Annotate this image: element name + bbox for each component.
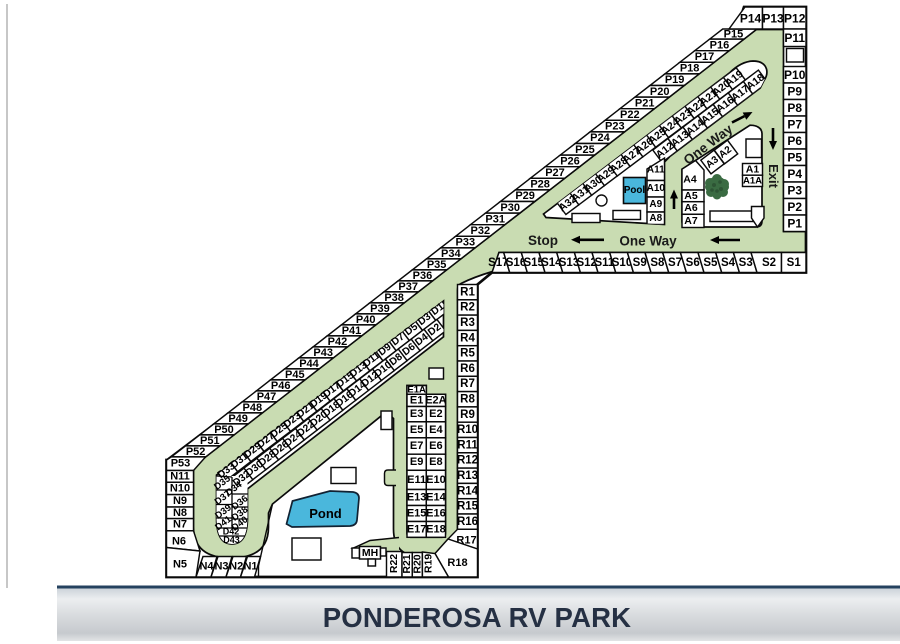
svg-text:Pool: Pool xyxy=(624,185,646,196)
svg-text:P30: P30 xyxy=(500,202,520,214)
svg-text:R9: R9 xyxy=(460,409,475,421)
svg-text:N11: N11 xyxy=(170,470,190,482)
svg-text:P28: P28 xyxy=(530,179,550,191)
svg-text:P22: P22 xyxy=(620,109,640,121)
svg-text:P16: P16 xyxy=(710,39,730,51)
svg-text:P21: P21 xyxy=(635,97,655,109)
svg-text:P3: P3 xyxy=(787,184,802,198)
svg-text:E2A: E2A xyxy=(425,394,446,406)
svg-text:N10: N10 xyxy=(170,483,190,495)
svg-text:One Way: One Way xyxy=(619,234,677,249)
svg-text:S7: S7 xyxy=(668,257,682,269)
svg-text:R4: R4 xyxy=(460,332,475,344)
svg-text:R16: R16 xyxy=(457,516,478,528)
svg-text:E5: E5 xyxy=(410,424,423,436)
svg-text:N6: N6 xyxy=(172,536,186,548)
svg-text:R15: R15 xyxy=(457,501,479,513)
svg-text:S1: S1 xyxy=(787,257,802,269)
svg-text:E9: E9 xyxy=(410,456,423,468)
svg-text:E4: E4 xyxy=(429,424,443,436)
svg-text:E13: E13 xyxy=(407,492,427,504)
svg-text:A4: A4 xyxy=(683,174,697,186)
svg-text:Exit: Exit xyxy=(766,164,781,189)
svg-text:PONDEROSA RV PARK: PONDEROSA RV PARK xyxy=(323,602,632,633)
svg-text:P31: P31 xyxy=(485,213,505,225)
svg-text:R13: R13 xyxy=(457,470,478,482)
svg-text:P53: P53 xyxy=(171,458,191,470)
svg-text:E1: E1 xyxy=(410,394,423,406)
svg-text:P4: P4 xyxy=(787,167,802,181)
svg-text:S3: S3 xyxy=(739,257,753,269)
svg-text:P1: P1 xyxy=(787,217,802,231)
svg-text:S9: S9 xyxy=(633,257,647,269)
svg-text:R8: R8 xyxy=(460,394,475,406)
svg-text:A11: A11 xyxy=(647,165,665,176)
svg-text:E16: E16 xyxy=(426,508,446,520)
svg-text:E14: E14 xyxy=(426,492,446,504)
svg-text:E10: E10 xyxy=(426,474,446,486)
svg-text:N4: N4 xyxy=(199,561,214,573)
svg-text:N7: N7 xyxy=(173,519,187,531)
svg-text:P8: P8 xyxy=(787,101,802,115)
svg-text:A8: A8 xyxy=(649,213,662,224)
svg-text:P24: P24 xyxy=(590,132,610,144)
svg-text:E11: E11 xyxy=(407,474,426,486)
svg-text:E7: E7 xyxy=(410,440,423,452)
svg-text:S4: S4 xyxy=(721,257,736,269)
svg-text:P11: P11 xyxy=(784,31,805,45)
svg-text:P9: P9 xyxy=(787,85,802,99)
svg-text:N3: N3 xyxy=(214,561,228,573)
svg-text:P26: P26 xyxy=(560,155,580,167)
svg-text:R19: R19 xyxy=(423,554,435,573)
svg-text:P52: P52 xyxy=(186,446,206,458)
svg-text:S6: S6 xyxy=(686,257,700,269)
svg-text:P25: P25 xyxy=(575,144,595,156)
svg-text:P32: P32 xyxy=(471,225,491,237)
svg-text:E17: E17 xyxy=(407,523,427,535)
svg-text:R5: R5 xyxy=(460,348,475,360)
svg-text:P17: P17 xyxy=(695,51,715,63)
svg-text:P10: P10 xyxy=(784,68,806,82)
svg-text:A7: A7 xyxy=(684,215,698,227)
svg-text:R18: R18 xyxy=(447,557,467,569)
svg-text:R6: R6 xyxy=(460,363,475,375)
svg-text:A9: A9 xyxy=(649,199,662,210)
svg-text:P12: P12 xyxy=(784,12,806,26)
svg-text:E6: E6 xyxy=(429,440,442,452)
svg-text:E2: E2 xyxy=(429,408,442,420)
svg-text:R20: R20 xyxy=(411,554,423,573)
svg-text:N5: N5 xyxy=(173,559,187,571)
svg-text:E18: E18 xyxy=(426,523,446,535)
svg-text:Pond: Pond xyxy=(309,506,342,521)
svg-text:P20: P20 xyxy=(650,86,670,98)
svg-text:S5: S5 xyxy=(703,257,718,269)
svg-text:P33: P33 xyxy=(456,237,476,249)
svg-text:E3: E3 xyxy=(410,408,423,420)
svg-text:N1: N1 xyxy=(243,561,257,573)
svg-text:R12: R12 xyxy=(457,455,478,467)
svg-text:P6: P6 xyxy=(787,134,802,148)
svg-text:N9: N9 xyxy=(173,495,187,507)
svg-text:R7: R7 xyxy=(460,378,475,390)
svg-text:P13: P13 xyxy=(762,12,784,26)
svg-text:Stop: Stop xyxy=(528,233,558,248)
svg-text:MH: MH xyxy=(362,547,378,559)
svg-text:A1A: A1A xyxy=(743,175,762,186)
svg-text:P29: P29 xyxy=(515,190,535,202)
svg-text:D43: D43 xyxy=(223,535,240,545)
svg-text:A6: A6 xyxy=(684,202,698,214)
svg-text:R2: R2 xyxy=(460,302,475,314)
svg-text:P18: P18 xyxy=(680,63,700,75)
svg-text:P23: P23 xyxy=(605,121,625,133)
svg-text:A1: A1 xyxy=(746,163,760,175)
svg-text:R22: R22 xyxy=(388,554,400,573)
svg-text:E8: E8 xyxy=(429,456,442,468)
svg-text:S8: S8 xyxy=(650,257,665,269)
svg-text:N8: N8 xyxy=(173,507,187,519)
svg-text:P2: P2 xyxy=(787,200,802,214)
svg-text:A5: A5 xyxy=(684,190,698,202)
svg-text:P19: P19 xyxy=(665,74,685,86)
svg-text:R14: R14 xyxy=(457,485,479,497)
svg-text:N2: N2 xyxy=(229,561,243,573)
svg-text:R3: R3 xyxy=(460,317,475,329)
svg-text:P14: P14 xyxy=(740,12,762,26)
svg-text:P27: P27 xyxy=(545,167,565,179)
svg-text:R10: R10 xyxy=(457,424,478,436)
svg-text:R1: R1 xyxy=(460,286,475,298)
svg-text:S2: S2 xyxy=(762,257,776,269)
svg-text:P7: P7 xyxy=(787,118,802,132)
svg-text:P5: P5 xyxy=(787,151,802,165)
svg-text:A10: A10 xyxy=(647,183,666,194)
svg-text:R11: R11 xyxy=(457,439,478,451)
svg-text:E15: E15 xyxy=(407,508,427,520)
